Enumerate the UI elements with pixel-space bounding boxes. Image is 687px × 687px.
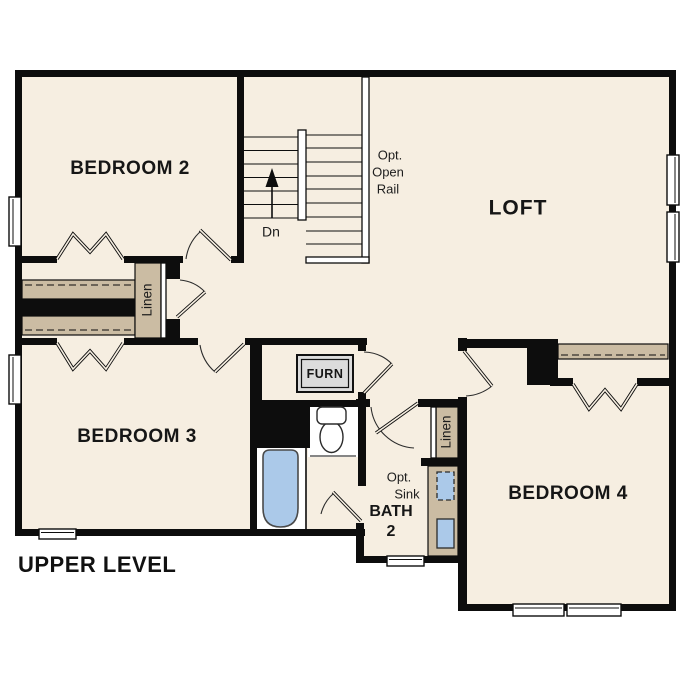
bath-label-line2: 2	[387, 523, 396, 540]
bedroom3-label: BEDROOM 3	[77, 426, 197, 447]
wall-bedroom2-right	[237, 70, 244, 263]
opt-open-rail-line2: Open	[372, 164, 404, 179]
bath-label-line1: BATH	[369, 503, 412, 520]
window	[667, 155, 679, 205]
window	[9, 197, 21, 246]
optional-sink	[437, 472, 454, 500]
stairs-down-label: Dn	[262, 224, 280, 240]
window	[667, 212, 679, 262]
window	[39, 529, 76, 539]
bedroom2-label: BEDROOM 2	[70, 158, 190, 179]
stair-outer-rail	[362, 77, 369, 263]
wall-bedroom4-top	[458, 339, 528, 348]
wall-furnace-top	[245, 338, 367, 345]
opt-open-rail-line1: Opt.	[378, 147, 403, 162]
stair-bottom-rail	[306, 257, 369, 263]
wall-bedroom3-right	[250, 338, 262, 400]
floor-plan-upper-level: FURN BEDROOM 2 LOFT BEDROOM 3 BEDROOM 4 …	[0, 0, 687, 687]
wall-outer-top	[15, 70, 676, 77]
opt-open-rail-line3: Rail	[377, 181, 400, 196]
bedroom2-closet-shelf	[22, 280, 135, 299]
window	[567, 604, 621, 616]
wall-closet-divider	[22, 299, 135, 316]
wall-bedroom4-left	[458, 397, 467, 604]
furnace-label: FURN	[307, 367, 344, 381]
bedroom3-closet-shelf	[22, 316, 135, 335]
loft-label: LOFT	[489, 197, 548, 220]
furnace-unit: FURN	[297, 355, 353, 392]
hall-linen-label: Linen	[140, 283, 155, 316]
floor-plan-drawing: FURN BEDROOM 2 LOFT BEDROOM 3 BEDROOM 4 …	[0, 0, 687, 687]
toilet	[317, 407, 346, 453]
plan-title: UPPER LEVEL	[18, 552, 176, 577]
wall-chase-block	[250, 400, 310, 448]
window	[387, 556, 424, 566]
wall-outer-left	[15, 70, 22, 536]
window	[513, 604, 564, 616]
bedroom4-label: BEDROOM 4	[508, 483, 628, 504]
bedroom4-closet-shelf	[558, 344, 668, 359]
opt-sink-line1: Opt.	[387, 469, 412, 484]
bath-linen-label: Linen	[439, 415, 454, 448]
window	[9, 355, 21, 404]
wall-bath-step	[356, 523, 364, 563]
vanity-sink	[437, 519, 454, 548]
stair-center-rail	[298, 130, 306, 220]
bathtub	[263, 450, 298, 527]
opt-sink-line2: Sink	[394, 486, 420, 501]
wall-outer-right	[669, 70, 676, 611]
